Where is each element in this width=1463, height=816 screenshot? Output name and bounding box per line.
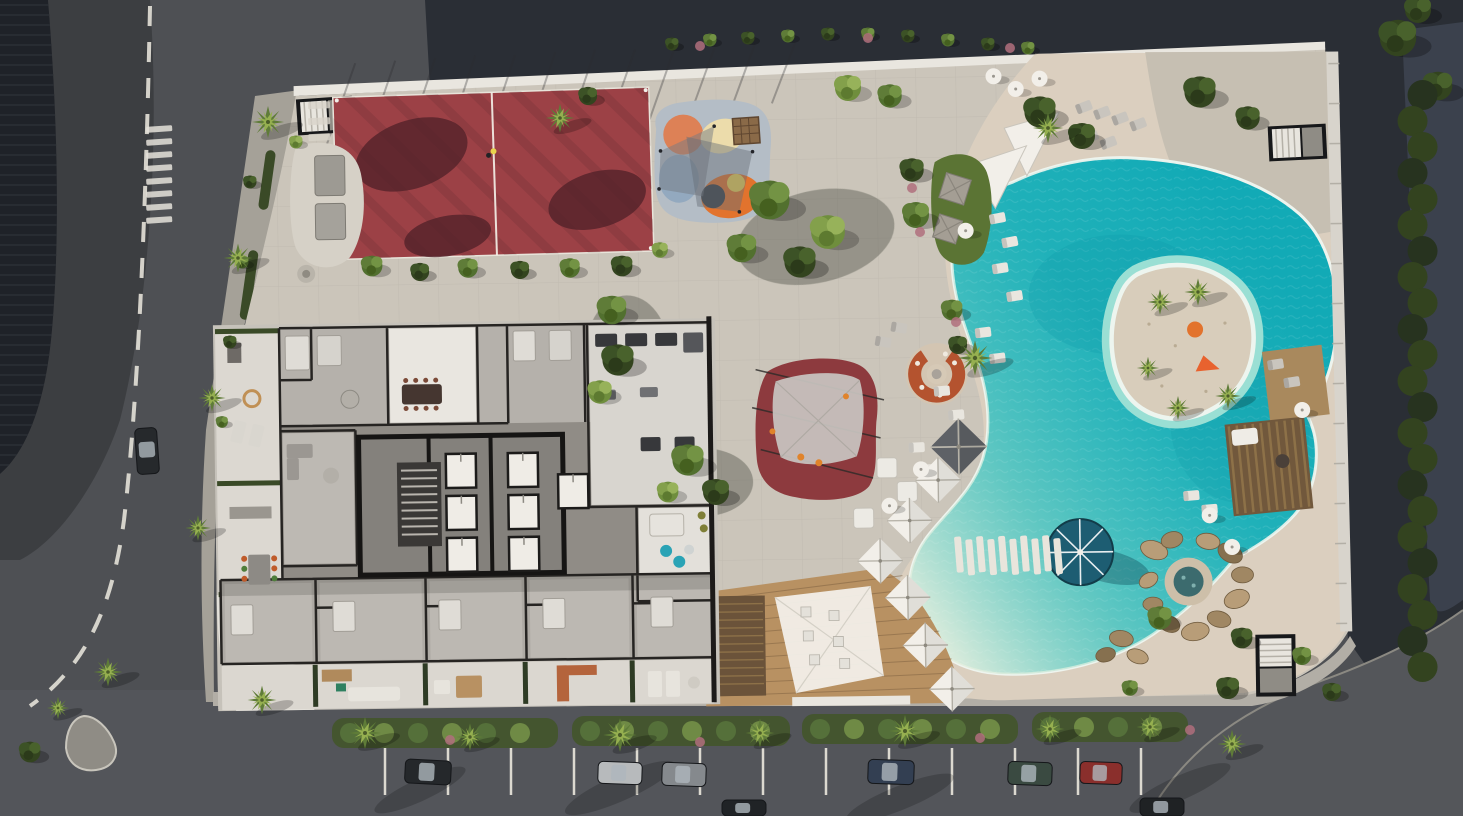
paving-bar <box>308 101 330 109</box>
parked-car <box>1008 761 1053 786</box>
grass-strip <box>930 154 992 265</box>
hedge-bush <box>1408 80 1438 110</box>
hedge-bush <box>1398 262 1428 292</box>
sun-lounger <box>934 385 951 396</box>
scene-svg: Street with dashed lane line Street park… <box>0 0 1463 816</box>
stair-kiosk-bottom <box>1255 634 1296 697</box>
hedge-bush <box>1408 600 1438 630</box>
amenity-room <box>389 328 476 423</box>
sun-lounger <box>948 409 965 420</box>
parked-car <box>404 759 451 785</box>
daybed <box>854 508 874 528</box>
elevator-cell <box>508 495 538 529</box>
flower-bush <box>1185 725 1195 735</box>
site-layer: Resort podium deck Lagoon swimming pool … <box>209 35 1354 721</box>
paving-bar <box>308 133 330 141</box>
sun-lounger <box>908 442 924 453</box>
elevator-cell <box>446 496 476 530</box>
hedge-bush <box>1408 392 1438 422</box>
daybed <box>877 458 897 478</box>
elevator-cell <box>446 454 476 488</box>
hedge-bush <box>1398 366 1428 396</box>
elevator-cell <box>508 453 538 487</box>
sun-lounger <box>1183 490 1200 501</box>
hedge-bush <box>1398 626 1428 656</box>
hedge-bush <box>1408 132 1438 162</box>
hedge-bush <box>1398 418 1428 448</box>
amenity-table <box>402 384 442 405</box>
parked-car <box>1080 761 1123 784</box>
hedge-bush <box>1408 496 1438 526</box>
hedge-bush <box>1408 184 1438 214</box>
parked-car <box>662 762 707 787</box>
parked-car <box>722 800 766 816</box>
parked-car <box>1140 798 1184 816</box>
flower-bush <box>907 183 917 193</box>
flower-bush <box>915 227 925 237</box>
hedge-bush <box>1398 522 1428 552</box>
flower-bush <box>975 733 985 743</box>
flower-bush <box>1005 43 1015 53</box>
sports-court: Red multi-sport court <box>333 87 654 265</box>
climbing-frame <box>732 117 760 145</box>
sun-lounger <box>975 327 992 339</box>
hedge-bush <box>1408 444 1438 474</box>
flower-bush <box>863 33 873 43</box>
hedge-bush <box>1398 574 1428 604</box>
deck-counter <box>792 696 910 707</box>
hedge-bush <box>1408 236 1438 266</box>
parked-car <box>868 759 915 785</box>
hedge-bush <box>1398 106 1428 136</box>
flower-bush <box>695 41 705 51</box>
hedge-bush <box>1398 314 1428 344</box>
rock <box>1231 567 1253 583</box>
parked-car <box>598 761 643 785</box>
building-floorplan: Apartment building floor plan <box>213 316 720 711</box>
elevator-cell <box>558 474 588 508</box>
stair-kiosk-top <box>1268 124 1328 162</box>
elevator-cell <box>447 538 477 572</box>
flower-bush <box>445 735 455 745</box>
aerial-render-canvas: Street with dashed lane line Street park… <box>0 0 1463 816</box>
hedge-bush <box>1408 548 1438 578</box>
hedge-bush <box>1398 470 1428 500</box>
flower-bush <box>951 317 961 327</box>
cabana-daybed <box>1231 427 1258 446</box>
canopy-play-area: Red play area with shade sail <box>751 358 885 501</box>
outdoor-dining-table <box>248 554 270 584</box>
hedge-bush <box>1408 288 1438 318</box>
parked-car <box>134 427 159 474</box>
flower-bush <box>695 737 705 747</box>
hedge-bush <box>1408 652 1438 682</box>
hedge-bush <box>1398 210 1428 240</box>
hedge-bush <box>1408 340 1438 370</box>
hedge-bush <box>1398 158 1428 188</box>
daybed <box>897 481 917 501</box>
elevator-cell <box>509 537 539 571</box>
paving-bar <box>308 117 330 125</box>
